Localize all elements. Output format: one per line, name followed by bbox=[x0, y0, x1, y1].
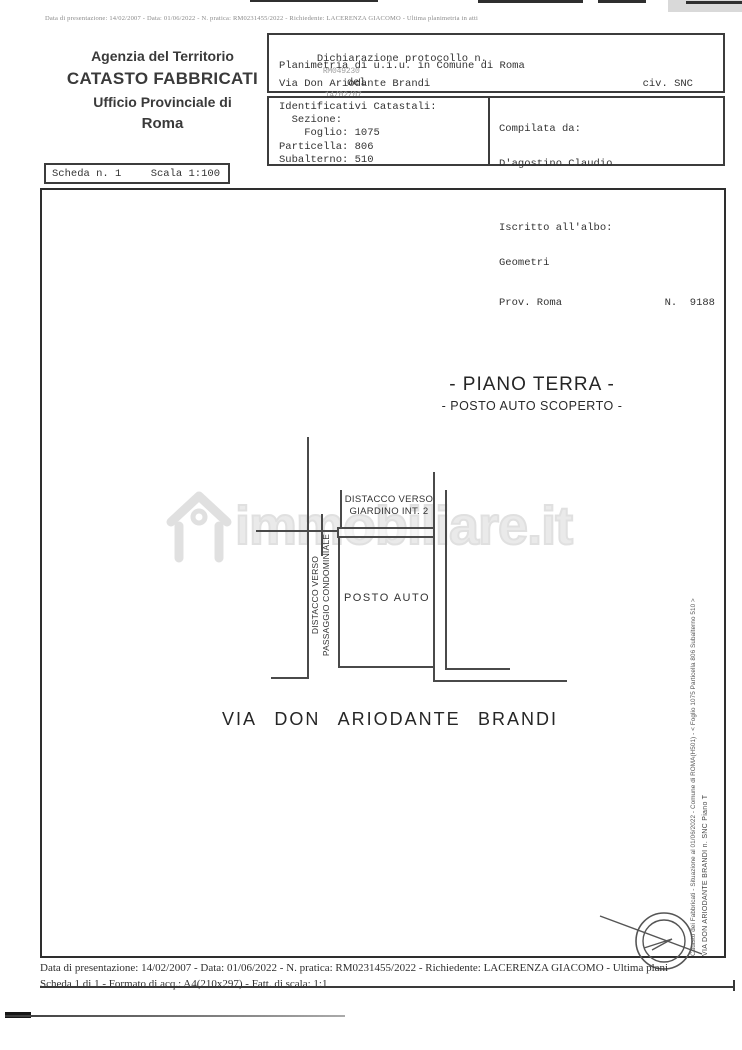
top-margin-note: Data di presentazione: 14/02/2007 - Data… bbox=[45, 15, 478, 22]
plan-line-passage-boundary bbox=[307, 437, 309, 679]
cadastral-identifiers: Identificativi Catastali: Sezione: Fogli… bbox=[279, 101, 437, 167]
footer-strike-tick bbox=[733, 980, 735, 991]
agency-line1: Agenzia del Territorio bbox=[55, 46, 270, 67]
cadastral-particella: Particella: 806 bbox=[279, 141, 374, 153]
civic-number: civ. SNC bbox=[643, 78, 693, 90]
plan-wall-bar bbox=[337, 527, 435, 538]
compiler-name: D'agostino Claudio bbox=[499, 159, 715, 171]
side-note-cadastral: Catasto dei Fabbricati - Situazione al 0… bbox=[690, 598, 697, 956]
drawing-frame bbox=[40, 188, 726, 958]
cadastral-box: Identificativi Catastali: Sezione: Fogli… bbox=[267, 96, 725, 166]
garden-setback-label: DISTACCO VERSO GIARDINO INT. 2 bbox=[328, 494, 450, 518]
sheet-number: Scheda n. 1 bbox=[52, 168, 121, 180]
cadastral-title: Identificativi Catastali: bbox=[279, 101, 437, 113]
planimetria-line: Planimetria di u.i.u. in Comune di Roma bbox=[279, 60, 715, 72]
footer-line1: Data di presentazione: 14/02/2007 - Data… bbox=[40, 962, 742, 974]
cadastral-foglio: Foglio: 1075 bbox=[279, 127, 380, 139]
cadastral-document-page: Data di presentazione: 14/02/2007 - Data… bbox=[0, 0, 742, 1050]
scan-artifact-edge bbox=[686, 1, 742, 4]
footer-strike-line bbox=[40, 986, 734, 988]
scan-artifact-edge bbox=[478, 0, 583, 3]
scan-artifact-edge bbox=[250, 0, 378, 2]
street-word-brandi: BRANDI bbox=[478, 709, 558, 730]
passage-setback-label-line2: PASSAGGIO CONDOMINIALE bbox=[321, 520, 332, 670]
garden-setback-label-line1: DISTACCO VERSO bbox=[328, 494, 450, 506]
street-row: Via Don Ariodante Brandi civ. SNC bbox=[279, 78, 715, 90]
agency-heading: Agenzia del Territorio CATASTO FABBRICAT… bbox=[55, 46, 270, 135]
agency-line4: Roma bbox=[55, 113, 270, 135]
plan-line-parking-bottom bbox=[338, 666, 435, 668]
cadastral-subalterno: Subalterno: 510 bbox=[279, 154, 374, 166]
cadastral-sezione: Sezione: bbox=[279, 114, 342, 126]
compiler-label: Compilata da: bbox=[499, 124, 715, 136]
footer-line2: Scheda 1 di 1 - Formato di acq.: A4(210x… bbox=[40, 978, 742, 990]
garden-setback-label-line2: GIARDINO INT. 2 bbox=[328, 506, 450, 518]
street-label: VIA DON ARIODANTE BRANDI bbox=[222, 709, 558, 730]
street-word-ariodante: ARIODANTE bbox=[338, 709, 461, 730]
street-name: Via Don Ariodante Brandi bbox=[279, 78, 430, 90]
plan-line-neighbor-foot bbox=[445, 668, 510, 670]
plan-line-right-foot bbox=[433, 680, 567, 682]
side-note-address: VIA DON ARIODANTE BRANDI n. SNC Piano T bbox=[702, 795, 709, 956]
scan-artifact-edge bbox=[598, 0, 646, 3]
street-word-via: VIA bbox=[222, 709, 257, 730]
declaration-box: Dichiarazione protocollo n. RM049230 del… bbox=[267, 33, 725, 93]
sheet-box: Scheda n. 1 Scala 1:100 bbox=[44, 163, 230, 184]
parking-spot-label: POSTO AUTO bbox=[339, 592, 435, 604]
scan-artifact-bottom-line bbox=[5, 1015, 345, 1017]
street-word-don: DON bbox=[274, 709, 320, 730]
sheet-scale: Scala 1:100 bbox=[151, 168, 220, 180]
agency-line3: Ufficio Provinciale di bbox=[55, 91, 270, 113]
agency-line2: CATASTO FABBRICATI bbox=[55, 67, 270, 91]
plan-subtitle: - POSTO AUTO SCOPERTO - bbox=[402, 399, 662, 413]
plan-title: - PIANO TERRA - bbox=[418, 374, 646, 396]
passage-setback-label-line1: DISTACCO VERSO bbox=[310, 520, 321, 670]
passage-setback-label: DISTACCO VERSO PASSAGGIO CONDOMINIALE bbox=[310, 520, 332, 670]
cadastral-box-divider bbox=[488, 98, 490, 164]
plan-line-passage-foot bbox=[271, 677, 308, 679]
